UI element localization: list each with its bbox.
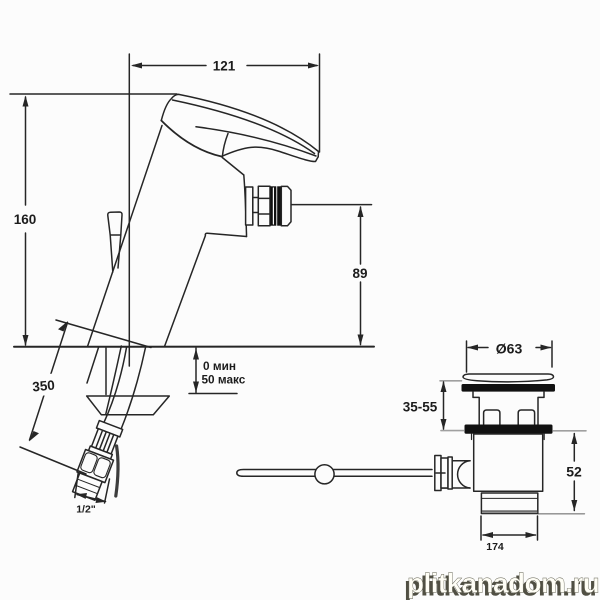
- svg-text:160: 160: [14, 212, 37, 227]
- svg-text:350: 350: [32, 378, 56, 395]
- svg-text:0 мин: 0 мин: [203, 359, 236, 373]
- svg-text:1/2": 1/2": [76, 504, 96, 516]
- svg-text:Ø63: Ø63: [496, 341, 523, 357]
- svg-text:121: 121: [213, 59, 236, 74]
- svg-text:174: 174: [486, 541, 504, 553]
- svg-text:plitkanadom.ru: plitkanadom.ru: [407, 568, 599, 599]
- svg-text:50 макс: 50 макс: [202, 373, 246, 387]
- svg-text:89: 89: [352, 266, 367, 281]
- svg-text:52: 52: [566, 464, 582, 480]
- svg-text:35-55: 35-55: [403, 400, 438, 415]
